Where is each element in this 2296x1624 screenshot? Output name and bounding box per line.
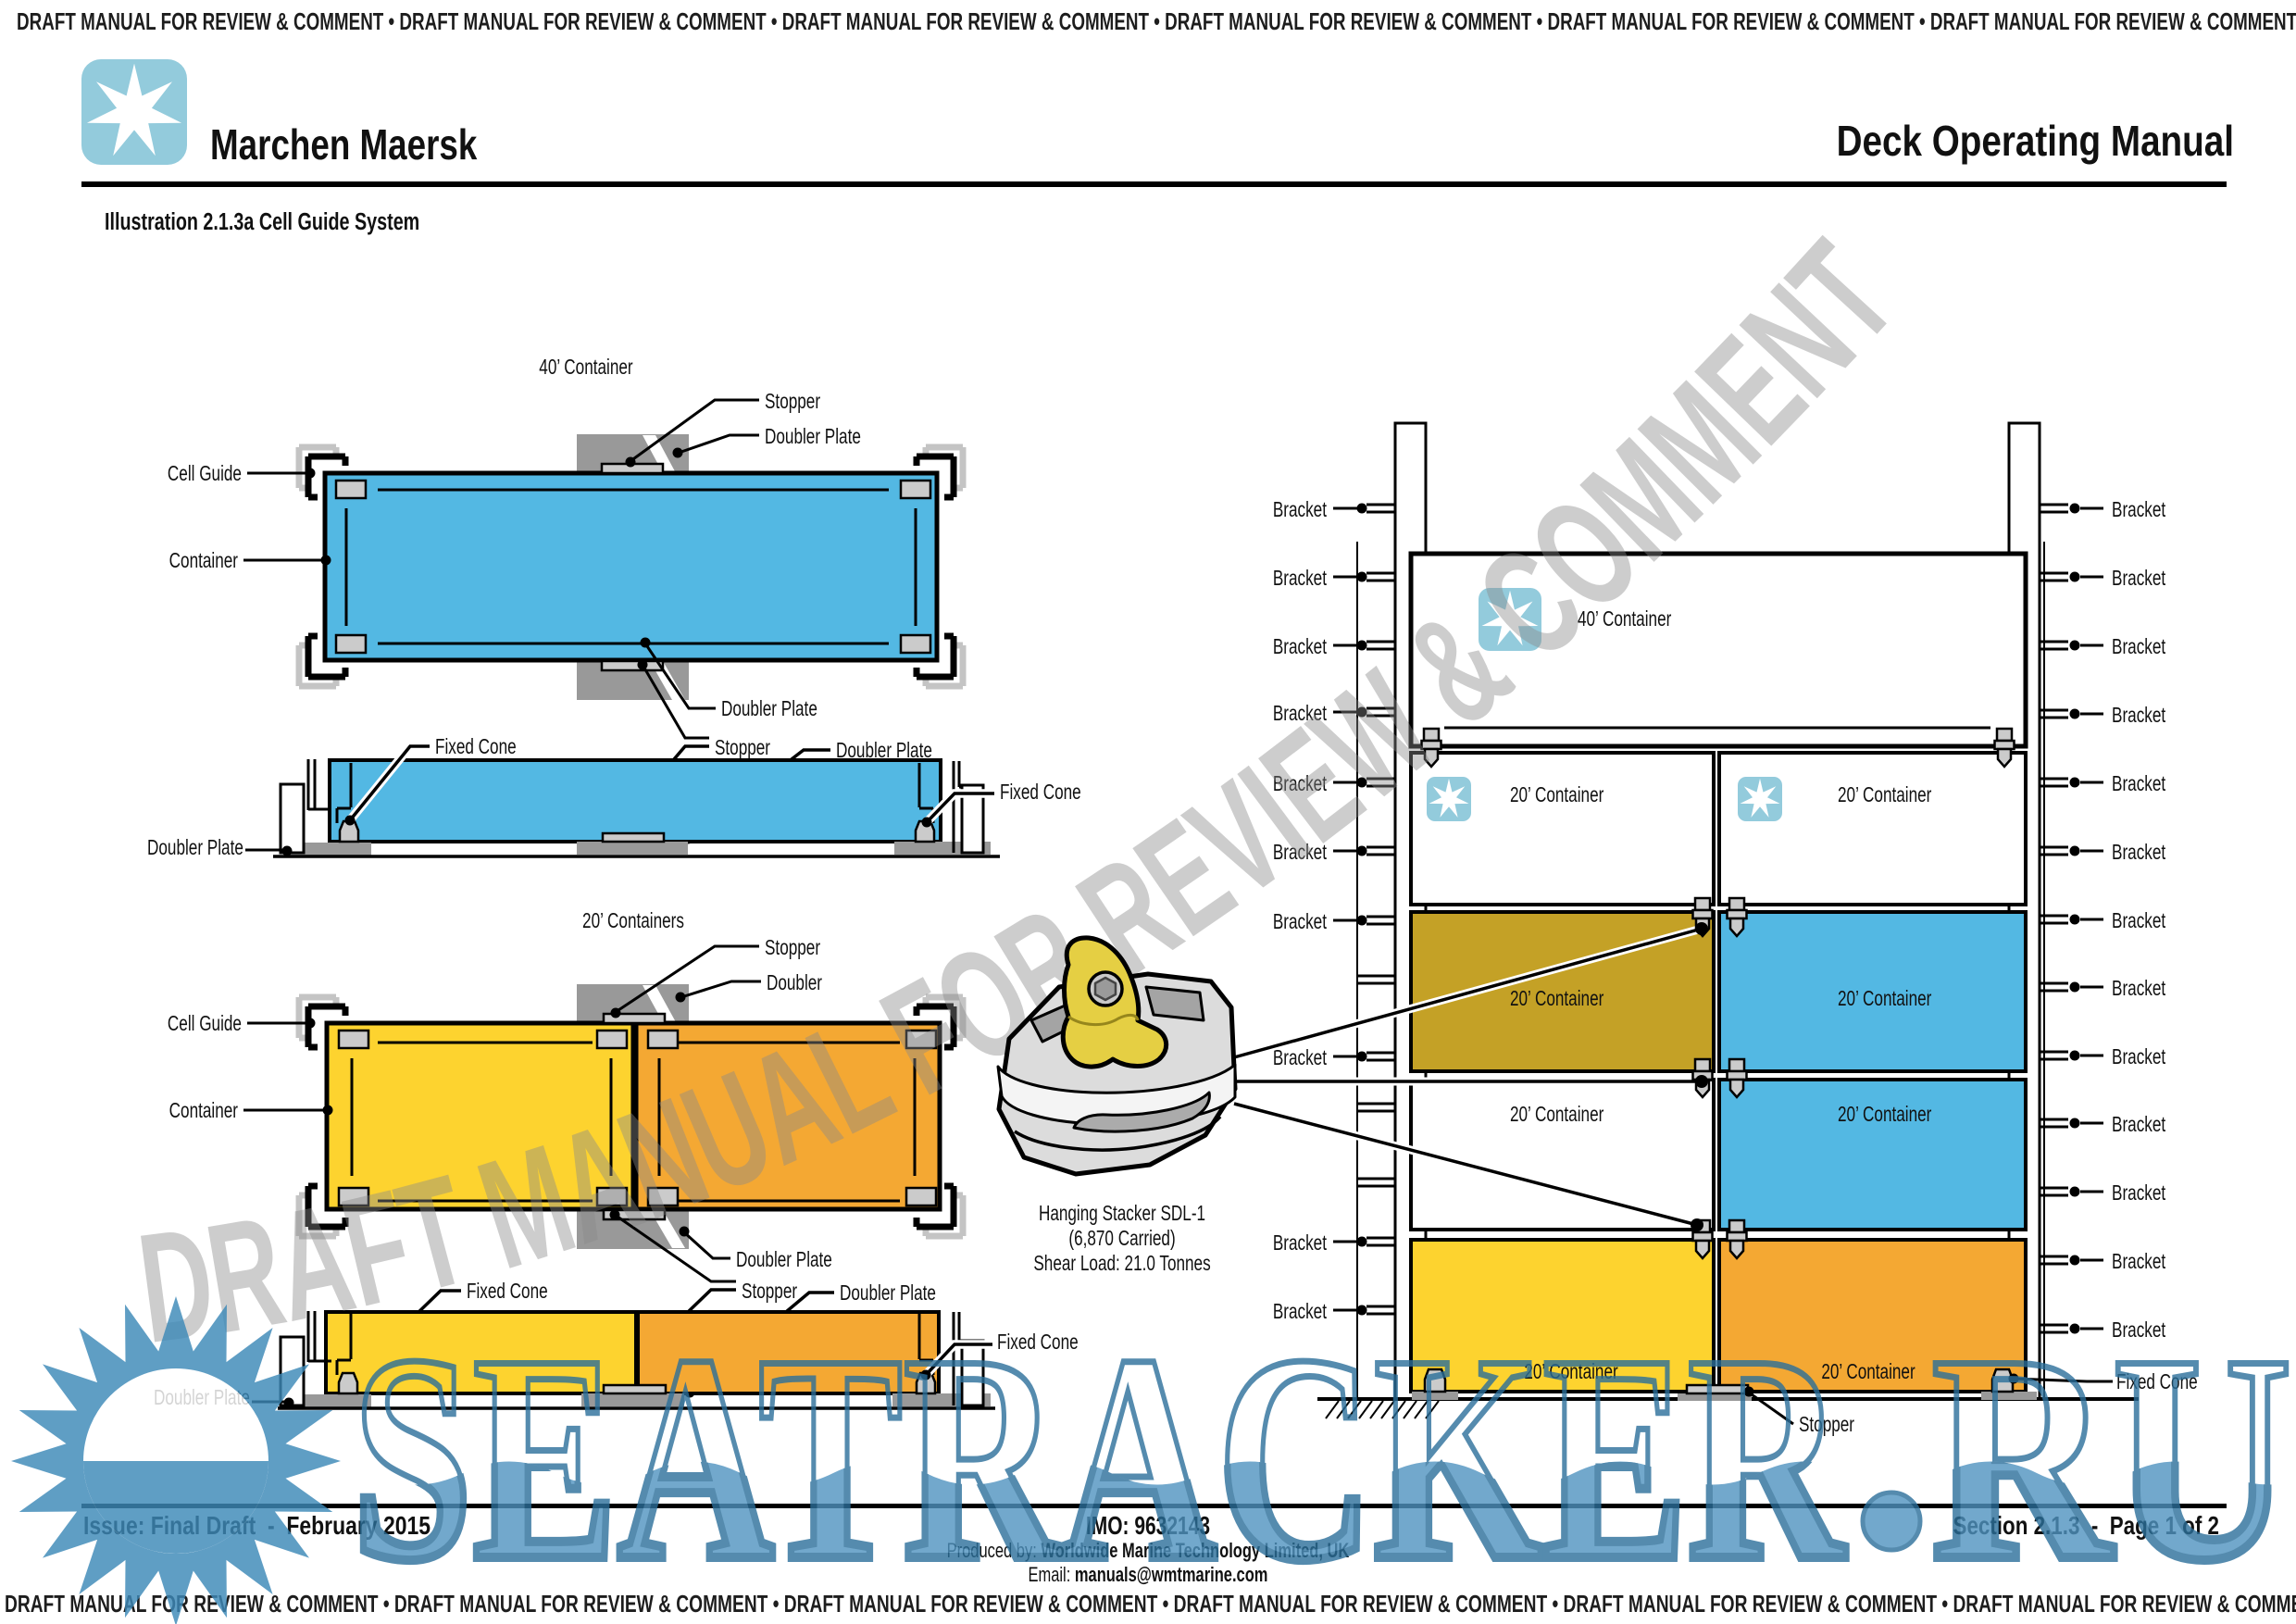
svg-text:Bracket: Bracket [2112,1181,2165,1205]
svg-text:Fixed Cone: Fixed Cone [1000,780,1081,804]
svg-text:Illustration 2.1.3a Cell Guide: Illustration 2.1.3a Cell Guide System [105,207,419,234]
svg-text:Bracket: Bracket [1273,497,1327,521]
svg-text:20’ Container: 20’ Container [1510,782,1603,806]
svg-text:Bracket: Bracket [1273,1045,1327,1069]
svg-text:Doubler Plate: Doubler Plate [736,1247,832,1271]
svg-text:Stopper: Stopper [765,389,820,413]
svg-text:20’ Container: 20’ Container [1510,986,1603,1010]
svg-text:DRAFT MANUAL FOR REVIEW & COMM: DRAFT MANUAL FOR REVIEW & COMMENT • DRAF… [17,7,2296,35]
svg-text:Hanging Stacker SDL-1: Hanging Stacker SDL-1 [1039,1201,1205,1225]
svg-text:Shear Load: 21.0 Tonnes: Shear Load: 21.0 Tonnes [1033,1251,1210,1275]
svg-text:Container: Container [169,548,238,572]
svg-text:Bracket: Bracket [2112,634,2165,658]
svg-text:Fixed Cone: Fixed Cone [435,734,517,758]
svg-text:Container: Container [169,1098,238,1122]
svg-text:Doubler Plate: Doubler Plate [765,424,861,448]
svg-text:Bracket: Bracket [2112,908,2165,932]
svg-text:Bracket: Bracket [2112,1112,2165,1136]
svg-text:Bracket: Bracket [1273,566,1327,590]
svg-text:20’ Container: 20’ Container [1510,1102,1603,1126]
svg-text:Cell Guide: Cell Guide [168,1011,242,1035]
svg-text:20’ Container: 20’ Container [1838,1102,1931,1126]
svg-text:Bracket: Bracket [2112,840,2165,864]
svg-text:Deck Operating Manual: Deck Operating Manual [1837,118,2234,165]
svg-text:Doubler Plate: Doubler Plate [721,696,817,720]
svg-text:40’ Container: 40’ Container [539,355,632,379]
svg-text:Stopper: Stopper [715,735,770,759]
svg-text:20’ Container: 20’ Container [1838,986,1931,1010]
svg-text:Bracket: Bracket [2112,1044,2165,1068]
svg-text:20’ Container: 20’ Container [1838,782,1931,806]
svg-text:Bracket: Bracket [2112,497,2165,521]
svg-text:Stopper: Stopper [765,935,820,959]
svg-text:(6,870 Carried): (6,870 Carried) [1068,1226,1175,1250]
svg-text:Bracket: Bracket [1273,1230,1327,1255]
svg-text:Doubler Plate: Doubler Plate [147,835,243,859]
svg-text:Bracket: Bracket [2112,976,2165,1000]
svg-text:Doubler: Doubler [767,970,822,994]
svg-text:Bracket: Bracket [2112,566,2165,590]
svg-text:20’ Containers: 20’ Containers [582,908,684,932]
svg-text:Marchen Maersk: Marchen Maersk [210,120,478,169]
svg-text:Cell Guide: Cell Guide [168,461,242,485]
svg-text:Bracket: Bracket [1273,634,1327,658]
svg-text:Bracket: Bracket [2112,703,2165,727]
svg-text:Bracket: Bracket [2112,1249,2165,1273]
svg-text:Bracket: Bracket [2112,771,2165,795]
